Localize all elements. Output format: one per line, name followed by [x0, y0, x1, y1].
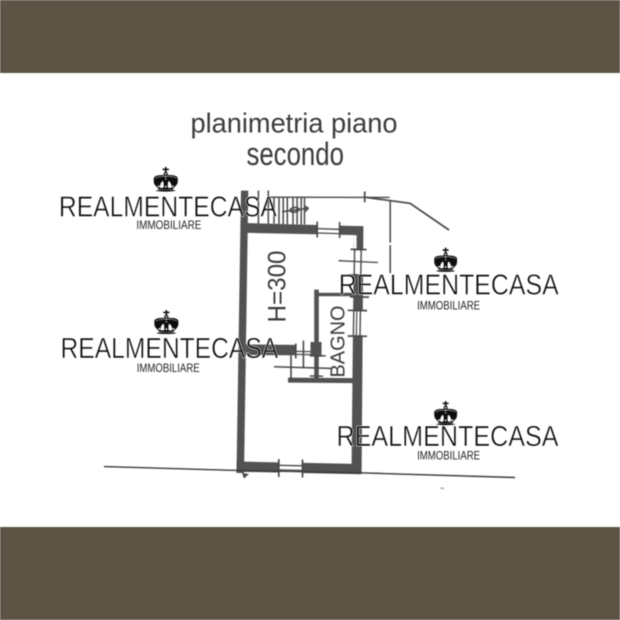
svg-text:IMMOBILIARE: IMMOBILIARE — [137, 362, 200, 375]
svg-text:secondo: secondo — [246, 136, 344, 172]
svg-text:IMMOBILIARE: IMMOBILIARE — [417, 300, 480, 313]
svg-text:IMMOBILIARE: IMMOBILIARE — [136, 219, 201, 232]
svg-text:IMMOBILIARE: IMMOBILIARE — [417, 450, 480, 463]
svg-text:BAGNO: BAGNO — [328, 306, 350, 378]
svg-text:REALMENTECASA: REALMENTECASA — [61, 333, 279, 365]
svg-text:planimetria piano: planimetria piano — [191, 107, 398, 138]
svg-text:H=300: H=300 — [264, 251, 292, 323]
svg-text:REALMENTECASA: REALMENTECASA — [337, 421, 560, 453]
svg-text:REALMENTECASA: REALMENTECASA — [339, 269, 560, 301]
